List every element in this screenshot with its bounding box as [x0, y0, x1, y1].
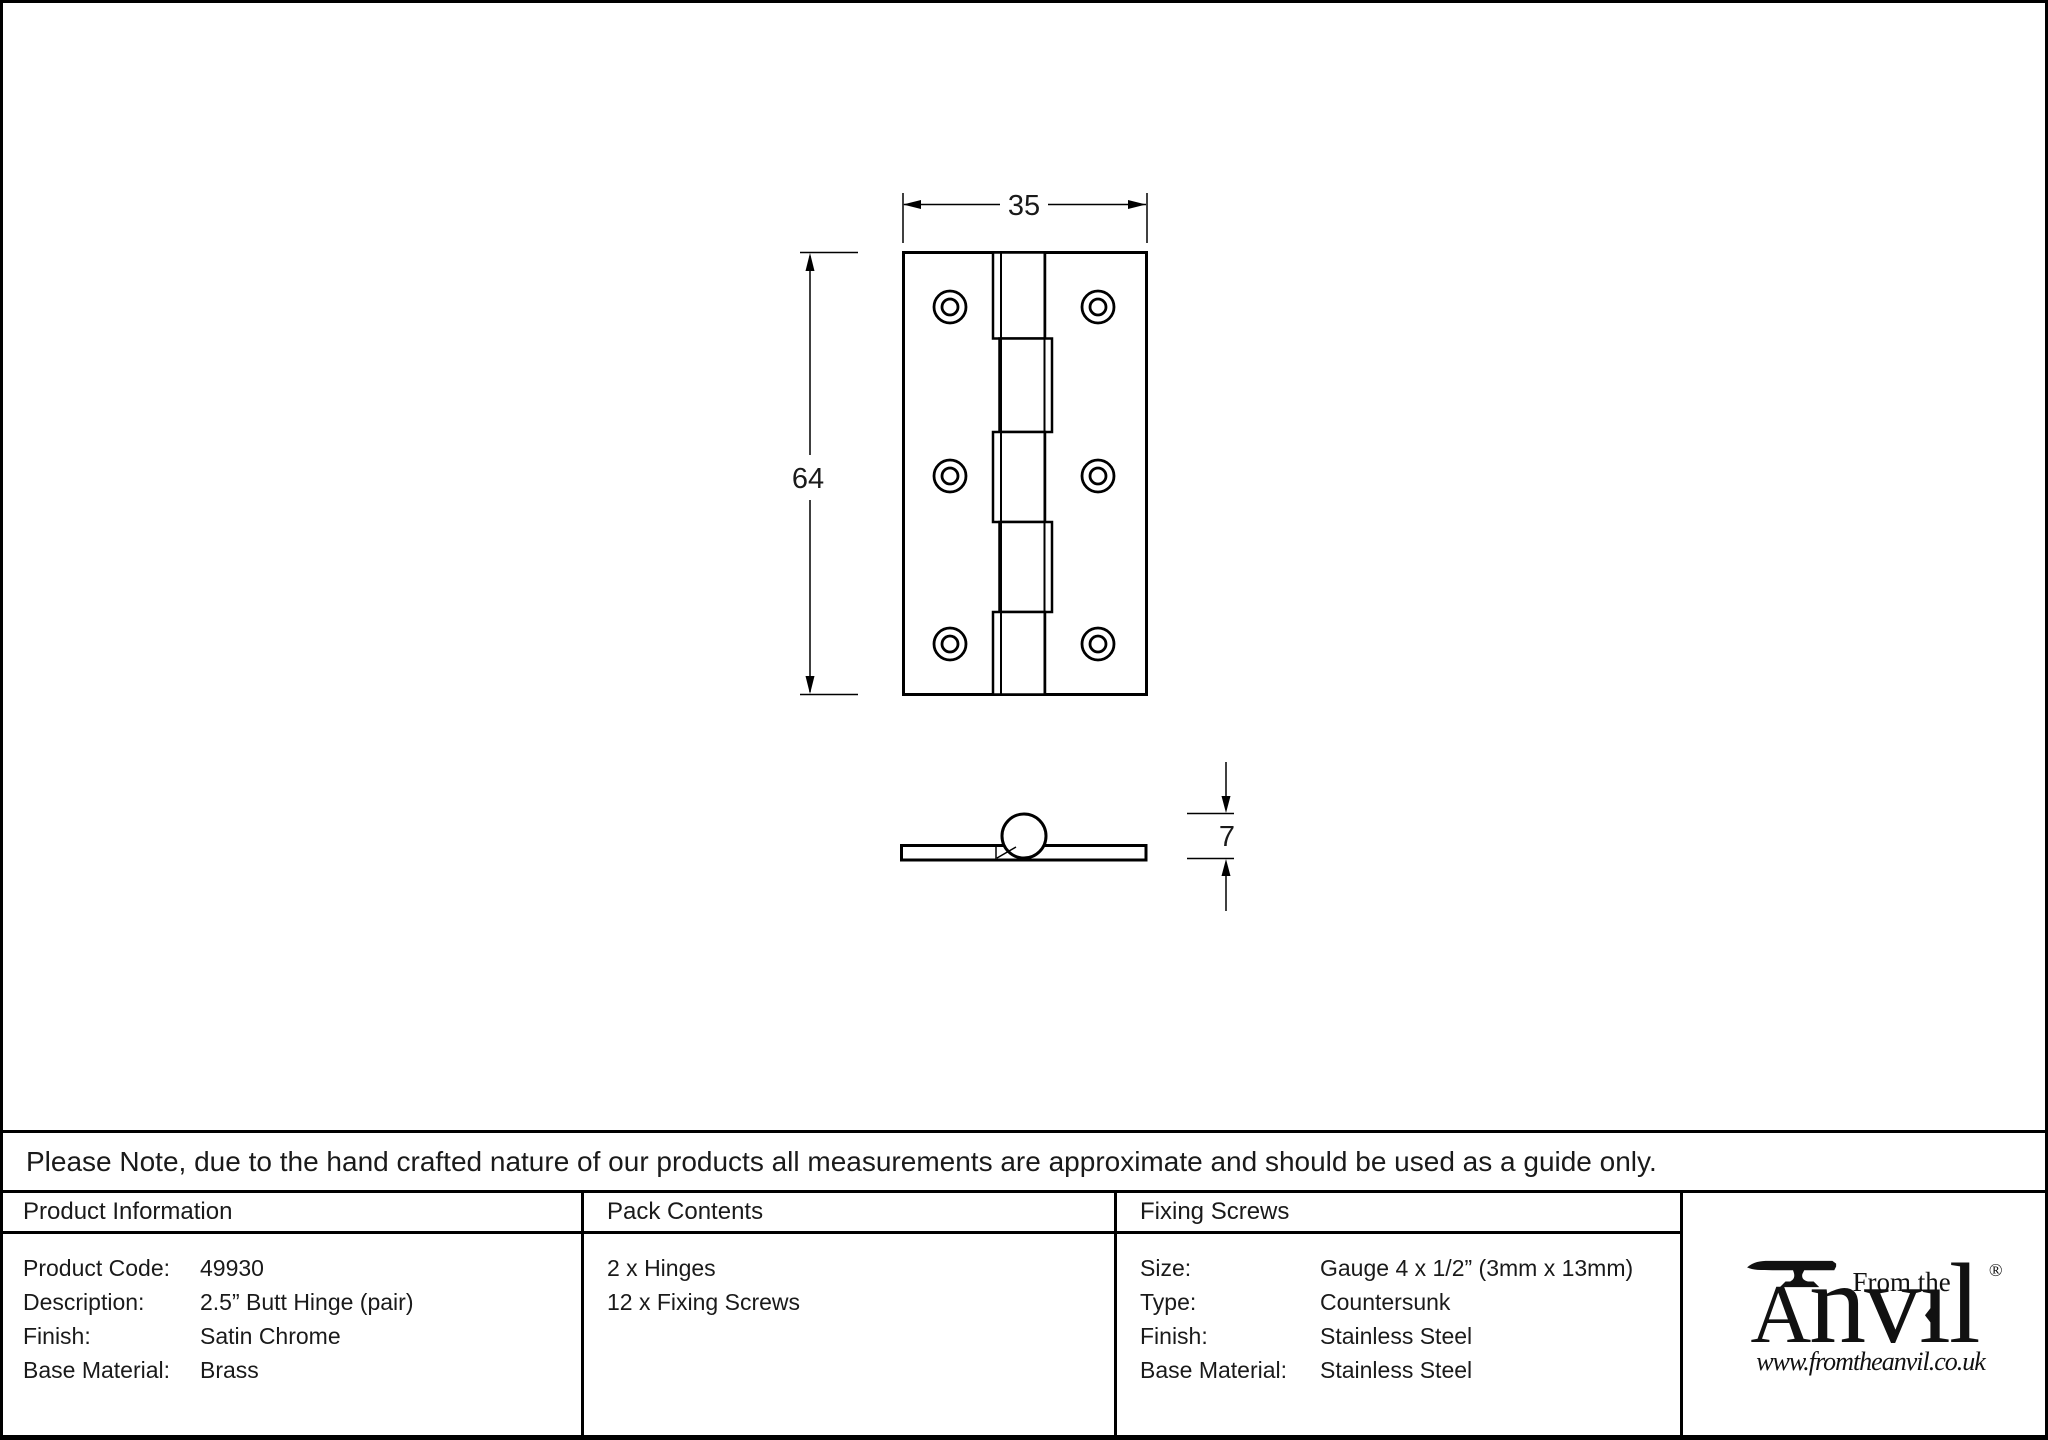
- from-the-anvil-logo: From the ® Anvıl ♦ www.fromtheanvil.co.u…: [1737, 1258, 1995, 1376]
- logo-website: www.fromtheanvil.co.uk: [1733, 1347, 2009, 1377]
- width-dimension: 35: [903, 190, 1147, 243]
- spec-row-finish: Finish: Satin Chrome: [23, 1319, 569, 1353]
- spec-row-screw-base-material: Base Material: Stainless Steel: [1140, 1353, 1668, 1387]
- spec-value: 49930: [200, 1251, 264, 1285]
- fixing-screws-column: Fixing Screws Size: Gauge 4 x 1/2” (3mm …: [1117, 1193, 1683, 1440]
- spec-value: Satin Chrome: [200, 1319, 341, 1353]
- width-dimension-label: 35: [1008, 190, 1040, 222]
- fixing-screws-header: Fixing Screws: [1117, 1193, 1680, 1234]
- hinge-side-view: [902, 814, 1147, 860]
- brand-logo-cell: From the ® Anvıl ♦ www.fromtheanvil.co.u…: [1683, 1193, 2048, 1440]
- spec-value: Countersunk: [1320, 1285, 1450, 1319]
- spec-label: Base Material:: [1140, 1353, 1320, 1387]
- spec-label: Base Material:: [23, 1353, 200, 1387]
- pack-contents-header: Pack Contents: [584, 1193, 1114, 1234]
- pack-contents-header-text: Pack Contents: [607, 1198, 763, 1226]
- height-dimension-label: 64: [792, 463, 824, 495]
- spec-label: Size:: [1140, 1251, 1320, 1285]
- spec-row-base-material: Base Material: Brass: [23, 1353, 569, 1387]
- fixing-screws-body: Size: Gauge 4 x 1/2” (3mm x 13mm) Type: …: [1117, 1234, 1680, 1440]
- spec-value: Stainless Steel: [1320, 1319, 1472, 1353]
- spec-table: Please Note, due to the hand crafted nat…: [0, 1130, 2048, 1440]
- pack-contents-body: 2 x Hinges 12 x Fixing Screws: [584, 1234, 1114, 1440]
- pack-contents-column: Pack Contents 2 x Hinges 12 x Fixing Scr…: [584, 1193, 1117, 1440]
- product-information-body: Product Code: 49930 Description: 2.5” Bu…: [0, 1234, 581, 1440]
- spec-label: Finish:: [23, 1319, 200, 1353]
- hinge-front-view: [904, 253, 1147, 695]
- pack-item-hinges: 2 x Hinges: [607, 1251, 1102, 1285]
- thickness-dimension-label: 7: [1219, 821, 1235, 853]
- spec-row-size: Size: Gauge 4 x 1/2” (3mm x 13mm): [1140, 1251, 1668, 1285]
- spec-row-screw-finish: Finish: Stainless Steel: [1140, 1319, 1668, 1353]
- product-information-header-text: Product Information: [23, 1198, 232, 1226]
- pack-item-text: 12 x Fixing Screws: [607, 1285, 800, 1319]
- pack-item-screws: 12 x Fixing Screws: [607, 1285, 1102, 1319]
- spec-row-type: Type: Countersunk: [1140, 1285, 1668, 1319]
- product-information-column: Product Information Product Code: 49930 …: [0, 1193, 584, 1440]
- spec-label: Description:: [23, 1285, 200, 1319]
- spec-value: Gauge 4 x 1/2” (3mm x 13mm): [1320, 1251, 1633, 1285]
- product-information-header: Product Information: [0, 1193, 581, 1234]
- spec-row-product-code: Product Code: 49930: [23, 1251, 569, 1285]
- measurement-note: Please Note, due to the hand crafted nat…: [0, 1130, 2048, 1193]
- height-dimension: 64: [792, 253, 858, 695]
- spec-value: Stainless Steel: [1320, 1353, 1472, 1387]
- spec-label: Finish:: [1140, 1319, 1320, 1353]
- spec-value: 2.5” Butt Hinge (pair): [200, 1285, 413, 1319]
- registered-trademark-symbol: ®: [1989, 1260, 2003, 1281]
- pack-item-text: 2 x Hinges: [607, 1251, 716, 1285]
- measurement-note-text: Please Note, due to the hand crafted nat…: [26, 1146, 1657, 1178]
- fixing-screws-header-text: Fixing Screws: [1140, 1198, 1289, 1226]
- spec-row-description: Description: 2.5” Butt Hinge (pair): [23, 1285, 569, 1319]
- table-columns: Product Information Product Code: 49930 …: [0, 1193, 2048, 1440]
- spec-label: Product Code:: [23, 1251, 200, 1285]
- spec-label: Type:: [1140, 1285, 1320, 1319]
- spec-value: Brass: [200, 1353, 259, 1387]
- spec-sheet-page: 35 64 7: [0, 0, 2048, 1440]
- thickness-dimension: 7: [1187, 762, 1235, 911]
